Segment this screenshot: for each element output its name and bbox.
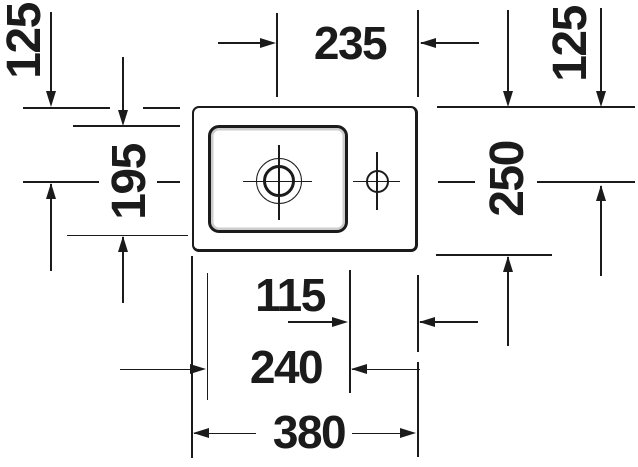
extension-line [537,181,635,183]
arrowhead-right [332,317,348,327]
arrowhead-down [596,91,606,107]
dim-line [507,10,509,92]
arrowhead-up [503,256,513,272]
extension-line [417,10,419,97]
dim-label-125-right: 125 [547,6,595,82]
dim-line [352,433,401,435]
extension-line [67,235,188,237]
dim-line [218,42,262,44]
arrowhead-right [400,428,416,438]
extension-line [23,107,110,109]
drain-crosshair-horizontal [243,181,312,183]
extension-line [23,181,99,183]
dim-label-250: 250 [484,141,532,217]
arrowhead-left [420,38,436,48]
dim-line [288,321,333,323]
drain-crosshair-vertical [278,145,280,220]
tap-crosshair-horizontal [353,181,400,183]
dim-label-235: 235 [314,20,386,66]
extension-line [438,181,475,183]
arrowhead-down [503,91,513,107]
arrowhead-left [351,364,367,374]
extension-line [436,254,552,256]
arrowhead-right [260,38,276,48]
dim-line [120,369,191,371]
technical-drawing-canvas: 125 195 235 125 250 115 [0,0,638,467]
extension-line [157,181,180,183]
arrowhead-down [118,110,128,126]
extension-line [417,275,419,352]
extension-line [276,13,278,97]
arrowhead-right [190,364,206,374]
arrowhead-left [193,428,209,438]
dim-label-240: 240 [250,344,322,390]
extension-line [349,270,351,393]
arrowhead-down [46,91,56,107]
dim-label-380: 380 [273,409,345,455]
arrowhead-up [596,185,606,201]
arrowhead-left [419,317,435,327]
extension-line [207,273,209,400]
extension-line [417,362,419,457]
arrowhead-up [46,183,56,199]
dim-label-125-left: 125 [1,3,49,79]
dim-label-115: 115 [255,272,325,318]
arrowhead-up [118,236,128,252]
dim-line [600,8,602,92]
dim-label-195: 195 [106,144,154,220]
dim-line [122,57,124,111]
extension-line [143,107,180,109]
